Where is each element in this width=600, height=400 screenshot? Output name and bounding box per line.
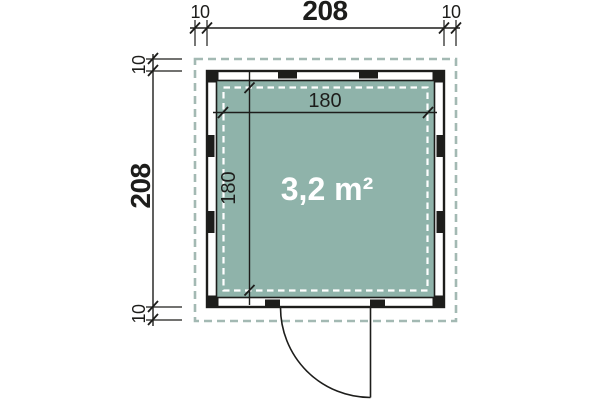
wall-stud-left-1 [208, 135, 215, 157]
door-jamb-stud-left [265, 300, 280, 307]
wall-stud-top-2 [359, 72, 378, 79]
area-label: 3,2 m² [281, 173, 373, 205]
dim-top-overhang-right-label: 10 [441, 3, 460, 21]
door-jamb-stud-right [370, 300, 385, 307]
interior-width-label: 180 [308, 91, 341, 111]
dim-overall-depth-label: 208 [127, 163, 155, 208]
dim-left-overhang-bottom-label: 10 [130, 304, 148, 323]
wall-stud-left-2 [208, 211, 215, 233]
dim-top-overhang-left-label: 10 [190, 3, 209, 21]
floor-plan-canvas: 10 208 10 10 208 10 180 180 3,2 m² [0, 0, 600, 400]
dim-left-overhang-top-label: 10 [130, 55, 148, 74]
wall-stud-right-2 [437, 211, 444, 233]
wall-stud-right-1 [437, 135, 444, 157]
interior-depth-label: 180 [219, 171, 239, 204]
wall-stud-top-1 [278, 72, 297, 79]
dim-overall-width-label: 208 [302, 0, 347, 25]
